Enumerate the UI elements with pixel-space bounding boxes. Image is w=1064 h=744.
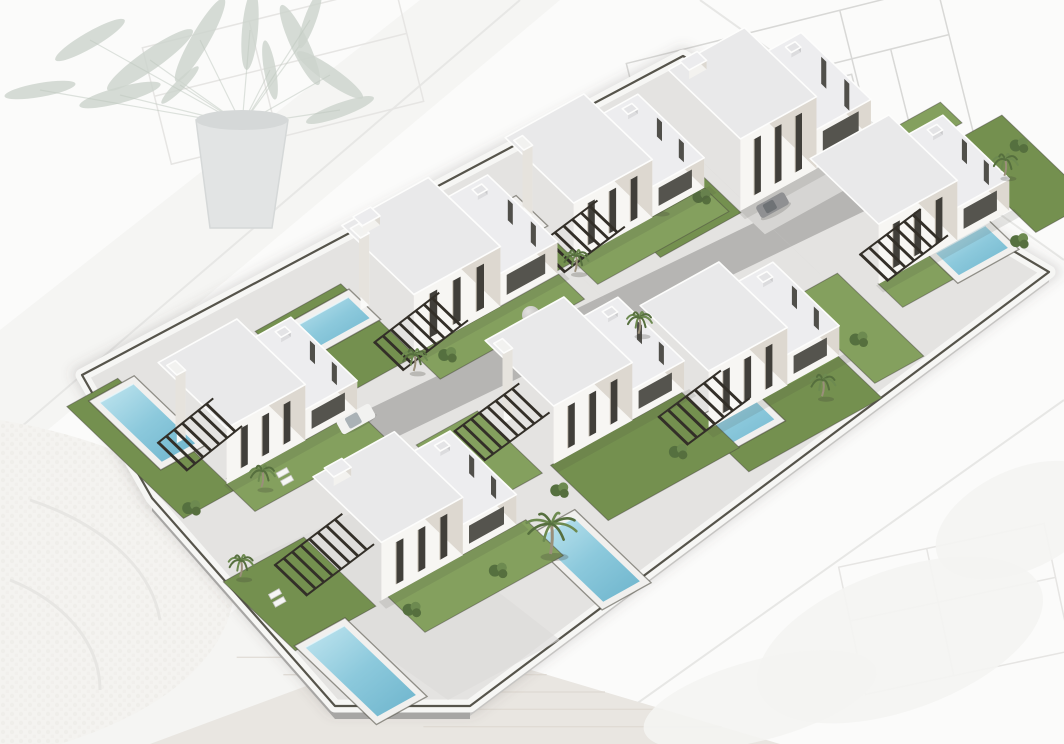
palm-shadow	[818, 397, 834, 402]
bush	[412, 608, 421, 617]
window-front	[476, 264, 484, 312]
palm-shadow	[541, 553, 569, 561]
palm-shadow	[571, 272, 587, 277]
window-side	[821, 57, 826, 89]
palm-trunk	[551, 524, 553, 554]
bush	[1019, 144, 1028, 153]
palm-shadow	[1000, 176, 1016, 181]
plant-pot	[196, 120, 288, 228]
architect-desk-scene	[0, 0, 1064, 744]
bush	[859, 338, 868, 347]
window-front	[765, 344, 772, 390]
aerial-render-svg	[0, 0, 1064, 744]
palm-shadow	[236, 577, 252, 582]
window-side	[844, 79, 849, 111]
window-front	[775, 124, 782, 184]
window-front	[630, 176, 637, 222]
window-front	[418, 526, 425, 572]
window-front	[589, 391, 596, 437]
window-front	[744, 356, 751, 402]
bush	[192, 507, 201, 516]
bush	[498, 569, 507, 578]
window-front	[754, 136, 761, 196]
window-front	[262, 413, 269, 457]
window-front	[283, 401, 290, 445]
palm-shadow	[634, 334, 650, 339]
bush	[1020, 240, 1029, 249]
bush	[560, 489, 569, 498]
window-front	[440, 514, 447, 560]
window-front	[610, 379, 617, 425]
palm-shadow	[257, 488, 273, 493]
window-front	[241, 424, 248, 468]
bush	[448, 354, 457, 363]
window-front	[795, 113, 802, 173]
window-front	[396, 538, 403, 584]
palm-shadow	[410, 371, 426, 376]
window-front	[568, 402, 575, 448]
plant-pot-rim	[196, 110, 288, 130]
bush	[678, 450, 687, 459]
